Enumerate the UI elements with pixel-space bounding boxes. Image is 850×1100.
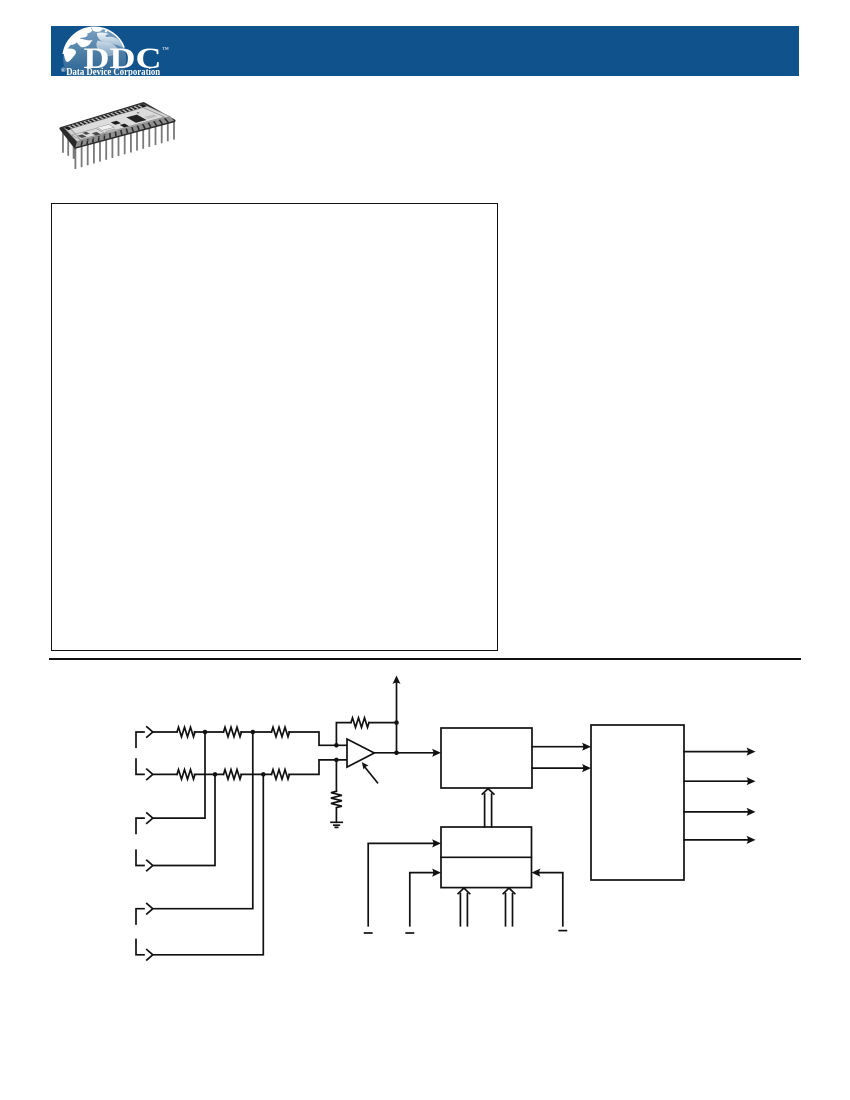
svg-text:Data Device Corporation: Data Device Corporation xyxy=(66,67,160,76)
svg-text:™: ™ xyxy=(162,46,169,54)
